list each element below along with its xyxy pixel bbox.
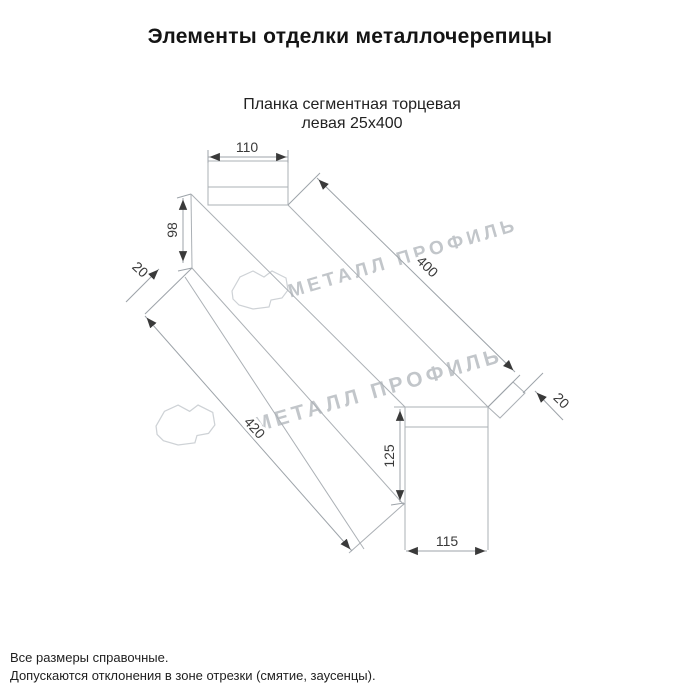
dim-20-right-label: 20 <box>550 389 572 411</box>
profile-bottom-end <box>394 407 488 550</box>
dimension-20-right: 20 <box>523 373 573 420</box>
footer-notes: Все размеры справочные. Допускаются откл… <box>10 649 376 685</box>
brand-logo-2 <box>156 405 215 445</box>
dimension-110: 110 <box>208 139 288 163</box>
profile-right-end-flap <box>488 382 525 418</box>
dim-125-label: 125 <box>381 444 397 468</box>
dim-110-label: 110 <box>236 139 259 155</box>
watermark-text-2: МЕТАЛЛ ПРОФИЛЬ <box>251 344 505 437</box>
watermark-text-1: МЕТАЛЛ ПРОФИЛЬ <box>286 215 521 303</box>
dim-98-label: 98 <box>164 222 180 238</box>
dim-115-label: 115 <box>436 533 459 549</box>
footer-note-2: Допускаются отклонения в зоне отрезки (с… <box>10 667 376 685</box>
dimension-115: 115 <box>406 533 487 551</box>
brand-logo-1 <box>232 271 288 309</box>
watermark-1-label: МЕТАЛЛ ПРОФИЛЬ <box>286 215 521 303</box>
dimension-20-left: 20 <box>126 258 159 302</box>
footer-note-1: Все размеры справочные. <box>10 649 376 667</box>
technical-drawing: МЕТАЛЛ ПРОФИЛЬ МЕТАЛЛ ПРОФИЛЬ <box>0 0 700 700</box>
dimension-98: 98 <box>164 194 192 271</box>
dimension-125: 125 <box>381 409 404 505</box>
dim-20-left-label: 20 <box>129 258 151 280</box>
watermark-2-label: МЕТАЛЛ ПРОФИЛЬ <box>251 344 505 437</box>
profile-top-end <box>191 161 288 268</box>
